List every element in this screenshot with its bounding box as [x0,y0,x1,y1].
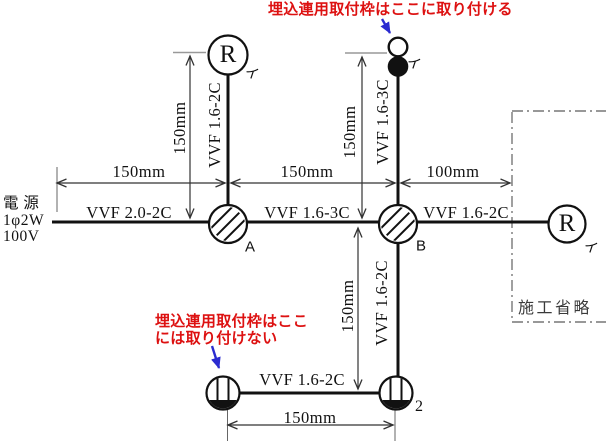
dim-label-lamp-top-leg: 150mm [170,102,190,155]
cable-label-a-to-lamp-top: VVF 1.6-2C [205,82,225,168]
power-source-voltage: 100V [3,229,44,246]
dim-label-outlet-span: 150mm [284,408,337,428]
power-source-phase: 1φ2W [3,213,44,230]
cable-label-a-to-b: VVF 1.6-3C [264,203,350,223]
annotation-arrow-bottom-icon [212,346,219,368]
note-top: 埋込連用取付枠はここに取り付ける [268,1,513,18]
cable-label-b-to-switch: VVF 1.6-3C [373,79,393,165]
cable-label-b-to-outlet: VVF 1.6-2C [372,260,392,346]
pilot-lamp-symbol [389,38,408,57]
junction-box-a-symbol [209,205,247,243]
note-bottom-line2: には取り付けない [155,330,308,347]
dim-label-outlet-leg: 150mm [338,280,358,333]
cable-label-outlet-to-outlet: VVF 1.6-2C [259,370,345,390]
note-bottom: 埋込連用取付枠はここ には取り付けない [155,313,308,347]
construction-omitted-label: 施工省略 [518,294,592,318]
cable-label-b-to-lamp-right: VVF 1.6-2C [423,203,509,223]
dim-label-a-to-b: 150mm [281,162,334,182]
box-b-label: B [416,238,426,255]
dim-label-source-to-a: 150mm [113,162,166,182]
wiring-diagram: 埋込連用取付枠はここに取り付ける 埋込連用取付枠はここ には取り付けない 電 源… [0,0,606,442]
annotation-arrow-top-icon [382,19,390,33]
dim-label-switch-leg: 150mm [340,106,360,159]
outlet-right-symbol [380,376,413,411]
power-source-name: 電 源 [3,196,44,213]
dim-label-b-to-omit: 100mm [427,162,480,182]
lamp-top-letter: R [220,41,237,69]
note-bottom-line1: 埋込連用取付枠はここ [155,313,308,330]
outlet-count-label: 2 [415,398,423,416]
lamp-right-letter: R [559,210,576,238]
cable-label-source-to-a: VVF 2.0-2C [86,203,172,223]
outlet-left-symbol [207,376,240,411]
power-source-label: 電 源 1φ2W 100V [3,196,44,246]
box-a-label: A [245,239,255,256]
junction-box-b-symbol [379,205,417,243]
